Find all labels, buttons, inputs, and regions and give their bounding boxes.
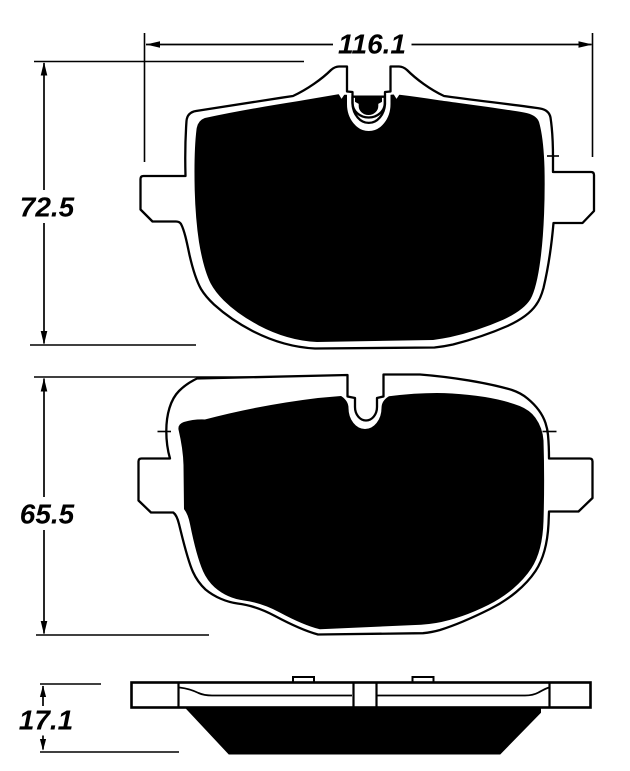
pad2-friction-material	[179, 394, 544, 629]
pad1-friction-material	[195, 95, 544, 342]
thickness-dimension-label: 17.1	[19, 705, 74, 736]
arrowhead-up-icon	[41, 62, 48, 76]
side-friction-material	[185, 707, 541, 754]
arrowhead-down-icon	[41, 621, 48, 635]
width-dimension-label: 116.1	[338, 29, 406, 60]
arrowhead-down-icon	[41, 331, 48, 345]
arrowhead-down-icon	[40, 739, 46, 751]
arrowhead-up-icon	[40, 686, 46, 698]
pad-side-view	[132, 677, 591, 754]
arrowhead-left-icon	[146, 41, 160, 48]
technical-drawing-canvas: 116.1 72.5 65.5	[0, 0, 630, 771]
pad1-front-view	[141, 67, 595, 349]
pad1-height-dimension-label: 72.5	[20, 192, 75, 223]
pad2-front-view	[139, 375, 593, 635]
arrowhead-right-icon	[579, 41, 593, 48]
pad1-channel-tongue	[356, 98, 382, 115]
arrowhead-up-icon	[41, 378, 48, 392]
pad2-height-dimension-label: 65.5	[20, 499, 75, 530]
